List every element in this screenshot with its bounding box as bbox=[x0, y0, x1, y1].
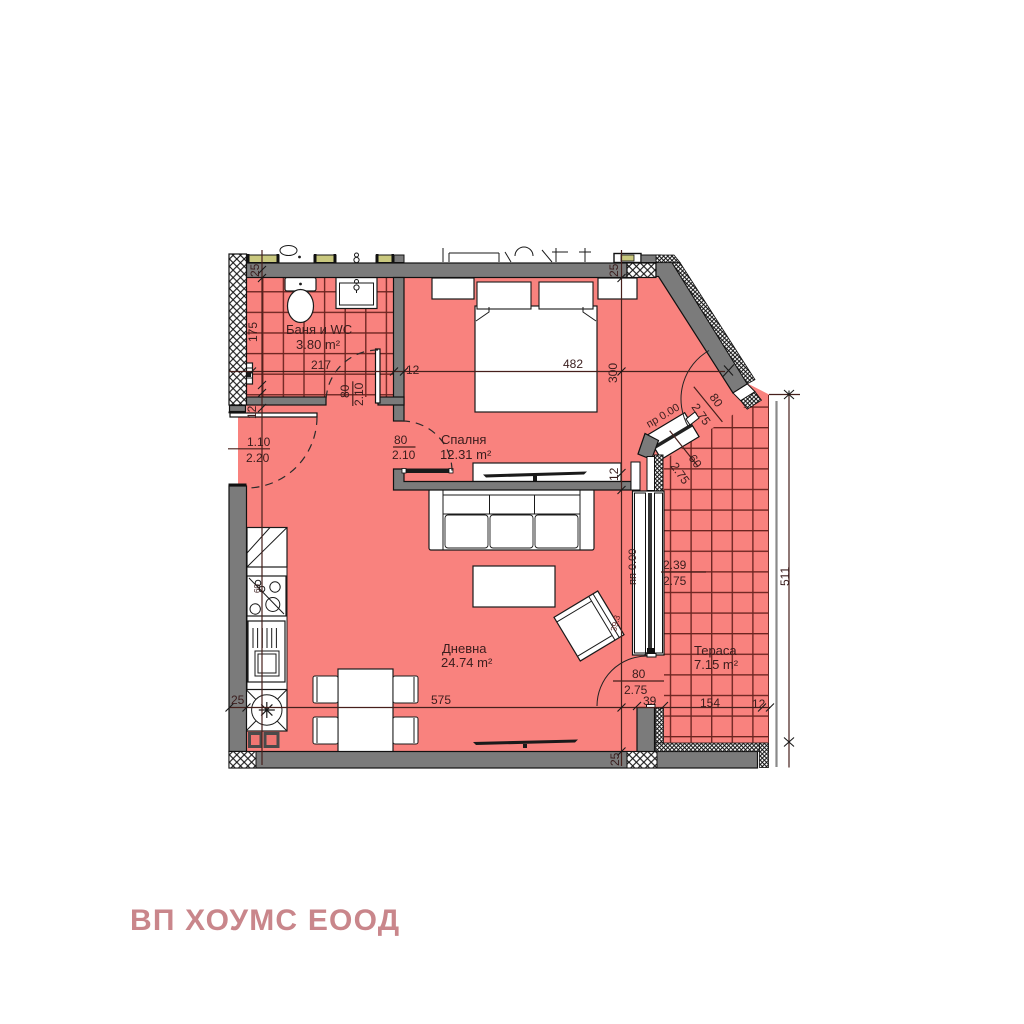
svg-text:25: 25 bbox=[231, 693, 245, 707]
svg-text:1.10: 1.10 bbox=[247, 435, 271, 449]
svg-text:12: 12 bbox=[752, 697, 766, 711]
svg-text:пп 0.00: пп 0.00 bbox=[627, 549, 639, 585]
svg-text:175: 175 bbox=[246, 322, 260, 342]
svg-text:Спалня: Спалня bbox=[441, 432, 486, 447]
svg-text:Тераса: Тераса bbox=[694, 643, 737, 658]
svg-text:ВП ХОУМС ЕООД: ВП ХОУМС ЕООД bbox=[130, 904, 400, 937]
svg-text:12.31 m²: 12.31 m² bbox=[440, 447, 492, 462]
svg-text:2.10: 2.10 bbox=[352, 382, 366, 406]
svg-text:217: 217 bbox=[311, 358, 331, 372]
svg-text:80: 80 bbox=[338, 384, 352, 398]
svg-text:7.15 m²: 7.15 m² bbox=[694, 657, 739, 672]
svg-text:80: 80 bbox=[632, 667, 646, 681]
svg-text:25: 25 bbox=[248, 263, 262, 277]
svg-text:Баня и WC: Баня и WC bbox=[286, 322, 352, 337]
svg-text:2.10: 2.10 bbox=[392, 448, 416, 462]
svg-text:Дневна: Дневна bbox=[442, 641, 487, 656]
svg-text:60: 60 bbox=[253, 584, 262, 593]
svg-text:2.75: 2.75 bbox=[624, 683, 648, 697]
svg-text:2.20: 2.20 bbox=[246, 451, 270, 465]
svg-text:25: 25 bbox=[607, 263, 621, 277]
svg-text:24.74 m²: 24.74 m² bbox=[441, 655, 493, 670]
svg-text:80: 80 bbox=[394, 433, 408, 447]
svg-text:300: 300 bbox=[606, 363, 620, 383]
svg-text:12: 12 bbox=[245, 405, 259, 419]
svg-text:12: 12 bbox=[406, 363, 420, 377]
svg-text:154: 154 bbox=[700, 696, 720, 710]
svg-text:2.39: 2.39 bbox=[663, 558, 687, 572]
svg-text:575: 575 bbox=[431, 693, 451, 707]
svg-text:12: 12 bbox=[607, 467, 621, 481]
svg-text:511: 511 bbox=[778, 567, 792, 586]
svg-text:25: 25 bbox=[608, 752, 622, 766]
svg-text:2.75: 2.75 bbox=[663, 574, 687, 588]
svg-text:482: 482 bbox=[563, 357, 583, 371]
svg-text:3.80 m²: 3.80 m² bbox=[296, 337, 341, 352]
